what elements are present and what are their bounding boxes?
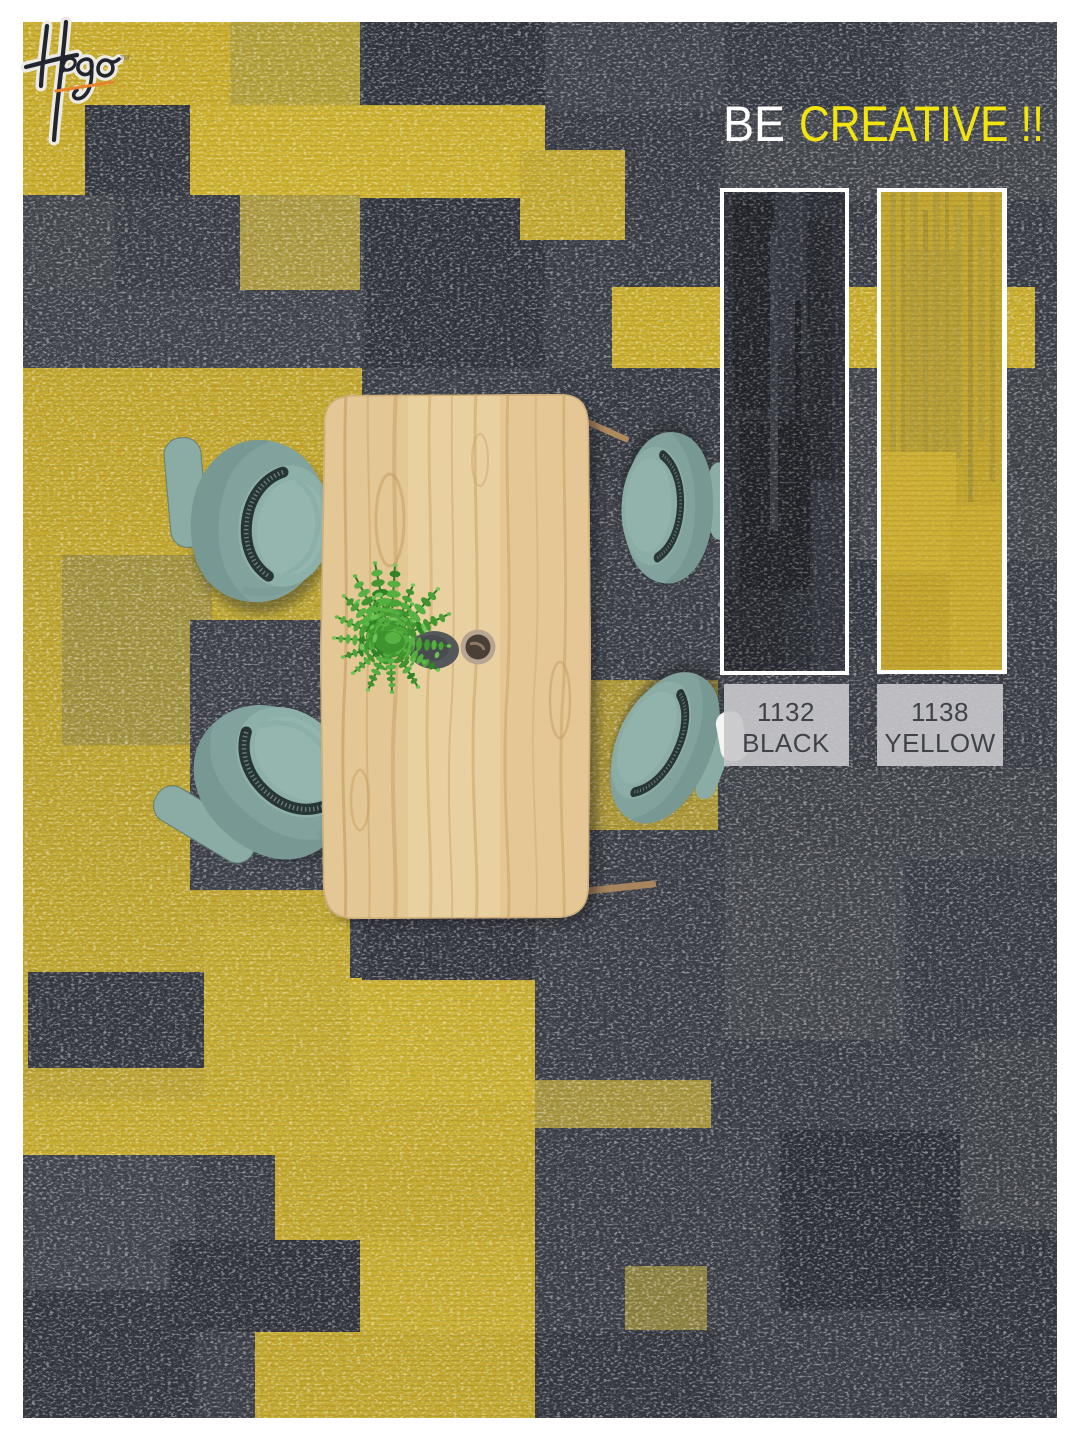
svg-text:1138: 1138 bbox=[911, 697, 969, 727]
svg-text:BLACK: BLACK bbox=[742, 728, 830, 758]
svg-text:BE: BE bbox=[723, 96, 785, 152]
svg-text:1132: 1132 bbox=[757, 697, 815, 727]
svg-text:CREATIVE !!: CREATIVE !! bbox=[799, 96, 1044, 152]
svg-text:YELLOW: YELLOW bbox=[884, 728, 995, 758]
svg-text:TM: TM bbox=[120, 55, 129, 62]
